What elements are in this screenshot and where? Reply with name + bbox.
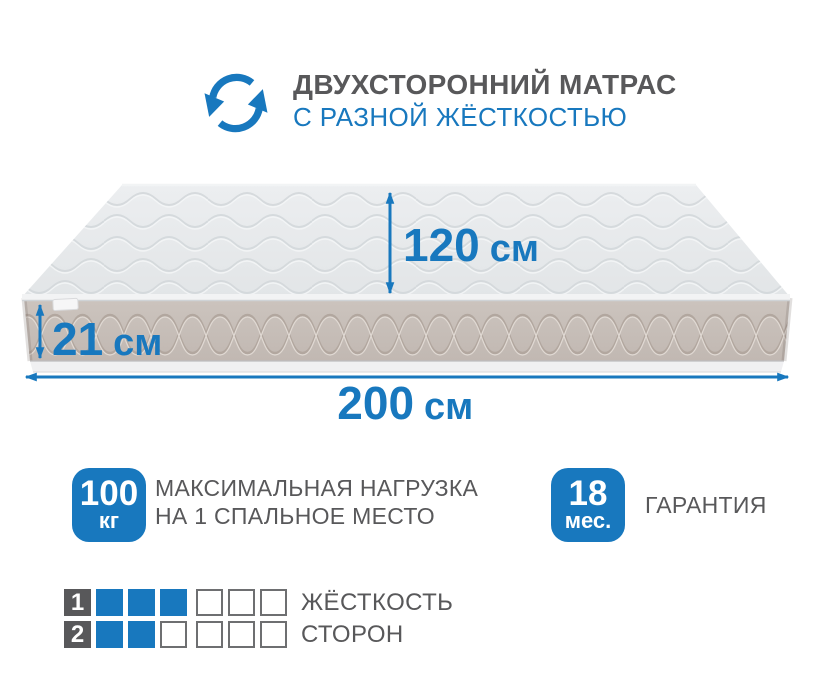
warranty-unit: мес. xyxy=(565,510,612,532)
firmness-cell-filled xyxy=(96,621,123,648)
firmness-cell-empty xyxy=(228,589,255,616)
page-subtitle: С РАЗНОЙ ЖЁСТКОСТЬЮ xyxy=(293,102,627,133)
width-value: 120 xyxy=(403,222,480,268)
dimension-height: 21 см xyxy=(52,316,162,362)
firmness-cell-empty xyxy=(260,589,287,616)
firmness-cell-empty xyxy=(160,621,187,648)
length-value: 200 xyxy=(337,380,414,426)
warranty-badge: 18 мес. xyxy=(551,468,625,542)
firmness-cell-empty xyxy=(196,589,223,616)
dimension-length: 200 см xyxy=(337,380,473,426)
firmness-label: ЖЁСТКОСТЬ СТОРОН xyxy=(301,587,453,651)
firmness-cell-filled xyxy=(128,621,155,648)
height-value: 21 xyxy=(52,316,103,362)
firmness-row: 2 xyxy=(64,621,287,648)
max-load-label: МАКСИМАЛЬНАЯ НАГРУЗКА НА 1 СПАЛЬНОЕ МЕСТ… xyxy=(155,474,478,530)
height-unit: см xyxy=(113,324,162,362)
firmness-cell-empty xyxy=(228,621,255,648)
dimension-width: 120 см xyxy=(403,222,539,268)
width-unit: см xyxy=(490,230,539,268)
firmness-side-number: 1 xyxy=(64,589,91,616)
max-load-value: 100 xyxy=(80,478,138,510)
max-load-badge: 100 кг xyxy=(72,468,146,542)
page-title: ДВУХСТОРОННИЙ МАТРАС xyxy=(293,69,677,101)
firmness-row: 1 xyxy=(64,589,287,616)
mattress-tag xyxy=(53,298,79,310)
warranty-value: 18 xyxy=(569,478,608,510)
length-unit: см xyxy=(424,388,473,426)
max-load-unit: кг xyxy=(99,510,119,532)
mattress-illustration xyxy=(0,165,816,400)
firmness-cell-filled xyxy=(160,589,187,616)
firmness-cell-empty xyxy=(196,621,223,648)
firmness-cell-filled xyxy=(96,589,123,616)
firmness-cell-empty xyxy=(260,621,287,648)
warranty-label: ГАРАНТИЯ xyxy=(645,491,767,519)
firmness-side-number: 2 xyxy=(64,621,91,648)
two-sided-arrows-icon xyxy=(204,71,268,135)
firmness-indicator: 12 xyxy=(64,589,287,648)
firmness-cell-filled xyxy=(128,589,155,616)
